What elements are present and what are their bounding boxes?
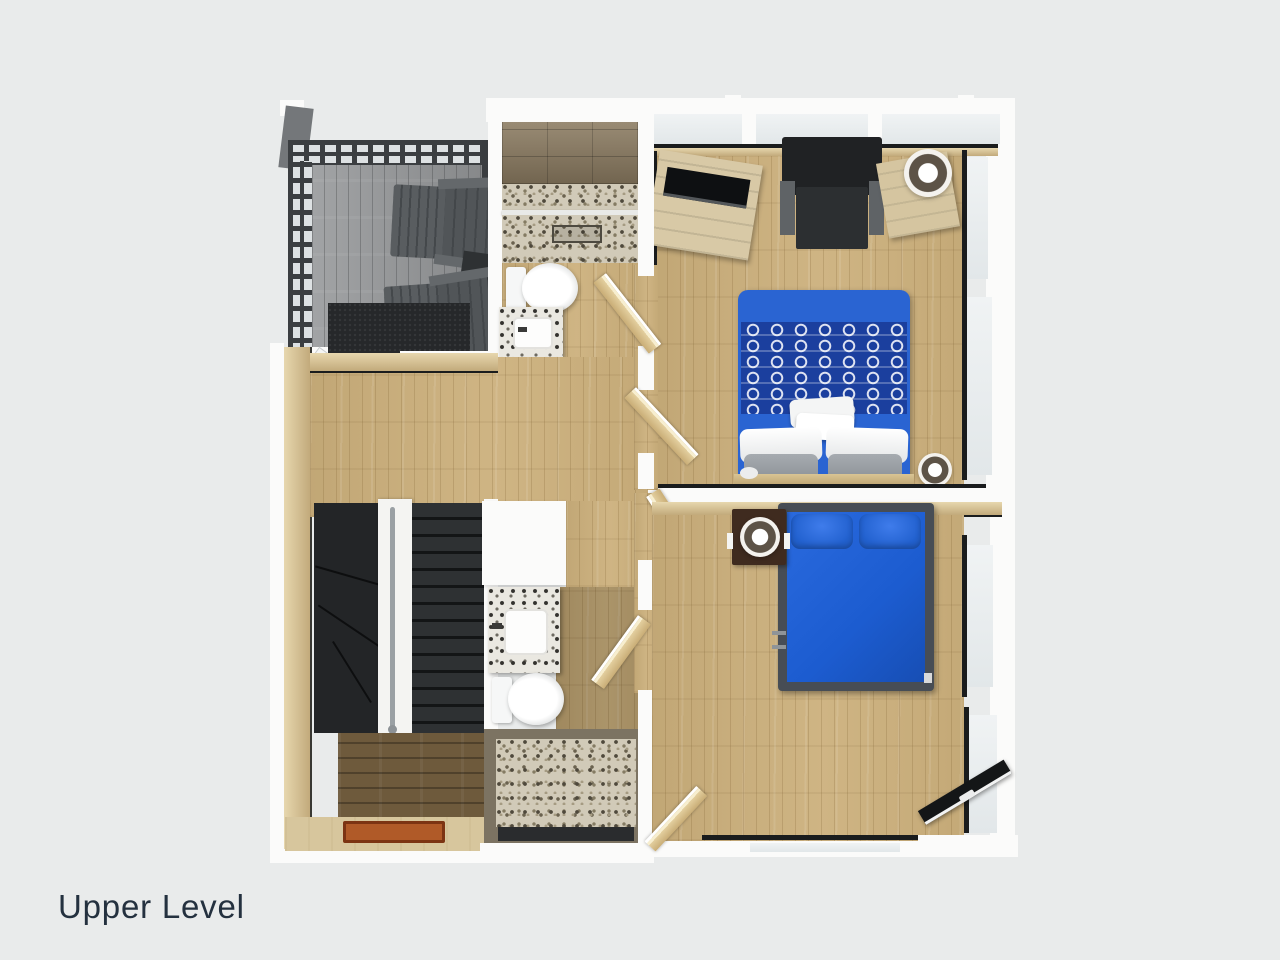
bed2-bottom-trim <box>702 835 924 840</box>
wall-hall-bed1-lower <box>638 453 654 489</box>
lower-level-tray <box>343 821 445 843</box>
bath1-shower-floor-upper <box>502 184 638 210</box>
bed2-nightstand-leg <box>784 533 790 549</box>
tv-flatscreen <box>663 167 751 209</box>
wall-bath1-top <box>486 98 652 122</box>
bath1-shower-wall <box>502 122 638 184</box>
floor-plan <box>270 95 1015 865</box>
wall-bed1-bottom <box>648 488 1012 502</box>
bed1-right-window-lower <box>967 297 992 475</box>
page: { "page": { "background_color": "#e9ebeb… <box>0 0 1280 960</box>
bed2-right-window-upper <box>967 545 993 687</box>
pergola-lattice-top <box>288 140 495 168</box>
armchair-arm <box>780 181 795 235</box>
bed2-ladder-rung <box>772 645 786 649</box>
bed1-window-mullion <box>742 114 756 144</box>
bath2-faucet <box>492 623 502 629</box>
bath1-sink-basin <box>513 317 553 349</box>
stair-rail-wall <box>378 499 412 741</box>
wallface-hall-left <box>284 347 312 849</box>
bath2-shower-glass <box>498 827 634 841</box>
bed1-right-window-upper <box>967 157 988 279</box>
wall-bath1-right-upper <box>638 110 654 276</box>
bed1-dresser <box>645 149 763 260</box>
chair-back <box>390 184 450 259</box>
hall-floor <box>310 357 648 517</box>
bath2-sink-basin <box>504 609 548 655</box>
bed2-pillow <box>791 514 853 549</box>
bath1-faucet <box>518 327 527 332</box>
bed2-nightstand-leg <box>727 533 733 549</box>
bed2 <box>778 503 934 691</box>
stair-straight-run <box>412 503 486 735</box>
bath1-shower-drain <box>552 225 602 243</box>
level-label: Upper Level <box>58 888 245 926</box>
bath2-toilet-bowl <box>508 673 564 725</box>
bed2-bottom-sidelight <box>750 843 900 852</box>
armchair-seat <box>796 187 868 249</box>
bed2-pillow <box>859 514 921 549</box>
bed2-ladder-rung <box>772 631 786 635</box>
wall-hall-bed1-mid <box>638 346 654 390</box>
winder-step-edge <box>315 565 383 586</box>
pergola-lattice-left <box>288 161 312 359</box>
handrail <box>390 507 395 729</box>
bath2-wall-block <box>482 501 566 585</box>
window-sill-tab <box>725 95 741 101</box>
window-sill-tab <box>958 95 974 101</box>
bed2-door-threshold <box>918 835 1018 857</box>
winder-step-edge <box>332 641 372 703</box>
wall-outer-left <box>270 343 284 858</box>
bed1-drum-lamp <box>904 149 952 197</box>
lower-level-floor <box>338 733 484 819</box>
bed1 <box>738 290 910 486</box>
bed1-decor-item <box>740 467 758 479</box>
bed1-armchair <box>780 137 884 253</box>
bed2-corner-cap <box>924 673 932 683</box>
wallface-hall-top <box>310 353 498 373</box>
bath1-toilet-bowl <box>522 263 578 313</box>
bed2-drum-lamp <box>740 517 780 557</box>
bath2-shower-pebble <box>496 739 636 827</box>
bath2-bottom-wall <box>480 843 654 859</box>
stair-winders <box>314 503 380 733</box>
winder-step-edge <box>318 604 380 647</box>
wall-bed1-top <box>648 98 1008 114</box>
bed1-table-lamp <box>918 453 952 487</box>
